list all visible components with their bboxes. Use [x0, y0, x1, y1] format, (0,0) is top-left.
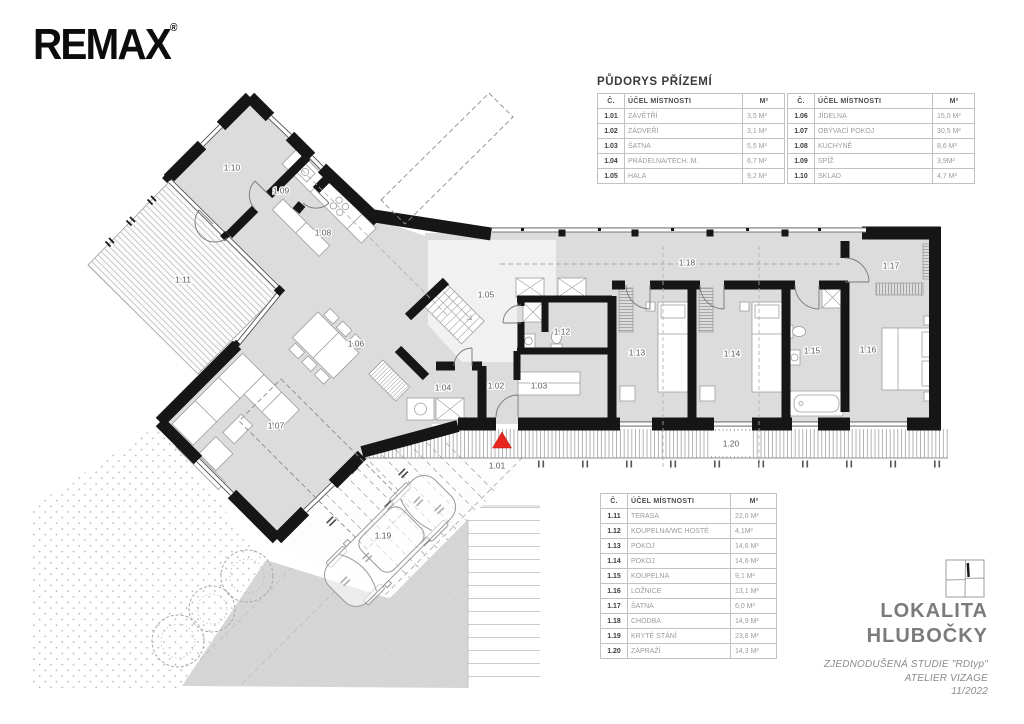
table-cell: 1.11: [601, 509, 628, 524]
column-header: M²: [933, 94, 975, 109]
table-cell: KRYTÉ STÁNÍ: [628, 629, 731, 644]
wardrobe-comb: [619, 288, 633, 332]
legend-table-1: Č.ÚČEL MÍSTNOSTIM²1.01ZÁVĚTŘÍ3,5 M²1.02Z…: [597, 93, 785, 184]
table-cell: 1.06: [788, 109, 815, 124]
room-label-1.04: 1.04: [435, 382, 452, 392]
table-cell: 1.17: [601, 599, 628, 614]
studio-name: ATELIER VIZAGE: [824, 672, 988, 686]
table-cell: 1.08: [788, 139, 815, 154]
room-label-1.12: 1.12: [554, 326, 571, 336]
table-cell: 5,5 M²: [743, 139, 785, 154]
table-cell: JÍDELNA: [815, 109, 933, 124]
table-row: 1.08KUCHYNĚ8,6 M²: [788, 139, 975, 154]
room-label-1.06: 1.06: [348, 338, 365, 348]
column-header: ÚČEL MÍSTNOSTI: [628, 494, 731, 509]
table-cell: 1.03: [598, 139, 625, 154]
table-row: 1.12KOUPELNA/WC HOSTÉ4,1M²: [601, 524, 777, 539]
table-row: 1.09SPÍŽ3,9M²: [788, 154, 975, 169]
table-row: 1.03ŠATNA5,5 M²: [598, 139, 785, 154]
entrance-canopy-outline: [381, 93, 513, 224]
table-row: 1.05HALA9,2 M²: [598, 169, 785, 184]
table-row: 1.01ZÁVĚTŘÍ3,5 M²: [598, 109, 785, 124]
table-cell: KUCHYNĚ: [815, 139, 933, 154]
table-row: 1.18CHODBA14,9 M²: [601, 614, 777, 629]
table-cell: 14,6 M²: [731, 554, 777, 569]
table-header-row: Č.ÚČEL MÍSTNOSTIM²: [788, 94, 975, 109]
table-cell: POKOJ: [628, 554, 731, 569]
locality-label: LOKALITA: [824, 599, 988, 624]
table-cell: 1.04: [598, 154, 625, 169]
locality-name: HLUBOČKY: [824, 624, 988, 649]
table-cell: TERASA: [628, 509, 731, 524]
room-label-1.03: 1.03: [531, 380, 548, 390]
room-label-1.18: 1.18: [679, 257, 696, 267]
room-label-1.13: 1.13: [629, 347, 646, 357]
table-cell: KOUPELNA/WC HOSTÉ: [628, 524, 731, 539]
wardrobe-comb: [699, 288, 713, 332]
table-cell: 1.10: [788, 169, 815, 184]
table-cell: 3,1 M²: [743, 124, 785, 139]
table-cell: 14,3 M²: [731, 644, 777, 659]
column-header: ÚČEL MÍSTNOSTI: [625, 94, 743, 109]
table-cell: 9,1 M²: [731, 569, 777, 584]
remax-logo: REMAX®: [33, 20, 177, 70]
table-cell: 14,9 M²: [731, 614, 777, 629]
atelier-logo-icon: [943, 557, 987, 601]
table-cell: 1.20: [601, 644, 628, 659]
table-cell: LOŽNICE: [628, 584, 731, 599]
table-cell: CHODBA: [628, 614, 731, 629]
table-cell: 1.19: [601, 629, 628, 644]
column-header: M²: [731, 494, 777, 509]
table-cell: 6,7 M²: [743, 154, 785, 169]
table-row: 1.06JÍDELNA15,0 M²: [788, 109, 975, 124]
column-header: M²: [743, 94, 785, 109]
room-label-1.05: 1.05: [478, 289, 495, 299]
room-label-1.10: 1.10: [224, 162, 241, 172]
wardrobe: [518, 372, 580, 395]
room-label-1.08: 1.08: [315, 227, 332, 237]
table-row: 1.02ZÁDVEŘÍ3,1 M²: [598, 124, 785, 139]
room-label-1.11: 1.11: [175, 274, 191, 284]
table-cell: ZÁVĚTŘÍ: [625, 109, 743, 124]
legend-title: PŮDORYS PŘÍZEMÍ: [597, 76, 712, 88]
table-cell: 30,5 M²: [933, 124, 975, 139]
room-label-1.02: 1.02: [488, 380, 505, 390]
table-cell: 1.01: [598, 109, 625, 124]
column-header: ÚČEL MÍSTNOSTI: [815, 94, 933, 109]
table-cell: PRÁDELNA/TECH. M.: [625, 154, 743, 169]
table-cell: SPÍŽ: [815, 154, 933, 169]
table-row: 1.20ZÁPRAŽÍ14,3 M²: [601, 644, 777, 659]
room-label-1.14: 1.14: [724, 348, 741, 358]
column-header: Č.: [598, 94, 625, 109]
column-header: Č.: [601, 494, 628, 509]
table-header-row: Č.ÚČEL MÍSTNOSTIM²: [601, 494, 777, 509]
table-row: 1.11TERASA22,0 M²: [601, 509, 777, 524]
table-cell: ŠATNA: [628, 599, 731, 614]
room-label-1.09: 1.09: [273, 185, 290, 195]
table-cell: 8,6 M²: [933, 139, 975, 154]
table-cell: 4,7 M²: [933, 169, 975, 184]
table-cell: 9,2 M²: [743, 169, 785, 184]
title-block: LOKALITA HLUBOČKY ZJEDNODUŠENÁ STUDIE "R…: [824, 599, 988, 699]
bed: [882, 316, 936, 401]
table-cell: 3,5 M²: [743, 109, 785, 124]
table-row: 1.04PRÁDELNA/TECH. M.6,7 M²: [598, 154, 785, 169]
room-label-1.07: 1.07: [268, 420, 285, 430]
remax-logo-text: REMAX: [33, 20, 170, 69]
table-cell: 4,1M²: [731, 524, 777, 539]
table-header-row: Č.ÚČEL MÍSTNOSTIM²: [598, 94, 785, 109]
registered-mark: ®: [170, 22, 177, 34]
table-cell: 1.16: [601, 584, 628, 599]
table-cell: 1.18: [601, 614, 628, 629]
table-cell: 13,1 M²: [731, 584, 777, 599]
table-cell: 1.02: [598, 124, 625, 139]
table-cell: 14,6 M²: [731, 539, 777, 554]
sheet-date: 11/2022: [824, 685, 988, 699]
room-label-1.17: 1.17: [883, 260, 900, 270]
table-row: 1.13POKOJ14,6 M²: [601, 539, 777, 554]
table-cell: 1.09: [788, 154, 815, 169]
legend-table-3: Č.ÚČEL MÍSTNOSTIM²1.11TERASA22,0 M²1.12K…: [600, 493, 777, 659]
room-label-1.16: 1.16: [860, 344, 877, 354]
table-cell: ZÁDVEŘÍ: [625, 124, 743, 139]
table-row: 1.15KOUPELNA9,1 M²: [601, 569, 777, 584]
room-label-1.19: 1.19: [375, 530, 392, 540]
table-cell: ZÁPRAŽÍ: [628, 644, 731, 659]
table-cell: 23,8 M²: [731, 629, 777, 644]
table-cell: OBÝVACÍ POKOJ: [815, 124, 933, 139]
table-cell: 1.12: [601, 524, 628, 539]
table-cell: 1.14: [601, 554, 628, 569]
table-cell: 1.07: [788, 124, 815, 139]
room-label-1.15: 1.15: [804, 345, 821, 355]
table-row: 1.07OBÝVACÍ POKOJ30,5 M²: [788, 124, 975, 139]
table-cell: 3,9M²: [933, 154, 975, 169]
table-cell: 1.15: [601, 569, 628, 584]
table-row: 1.16LOŽNICE13,1 M²: [601, 584, 777, 599]
table-cell: KOUPELNA: [628, 569, 731, 584]
room-label-1.20: 1.20: [723, 438, 740, 448]
column-header: Č.: [788, 94, 815, 109]
table-row: 1.10SKLAD4,7 M²: [788, 169, 975, 184]
table-cell: 1.13: [601, 539, 628, 554]
table-row: 1.14POKOJ14,6 M²: [601, 554, 777, 569]
table-row: 1.19KRYTÉ STÁNÍ23,8 M²: [601, 629, 777, 644]
study-name: ZJEDNODUŠENÁ STUDIE "RDtyp": [824, 658, 988, 672]
table-row: 1.17ŠATNA6,0 M²: [601, 599, 777, 614]
table-cell: POKOJ: [628, 539, 731, 554]
legend-table-2: Č.ÚČEL MÍSTNOSTIM²1.06JÍDELNA15,0 M²1.07…: [787, 93, 975, 184]
room-label-1.01: 1.01: [489, 460, 506, 470]
table-cell: 15,0 M²: [933, 109, 975, 124]
table-cell: HALA: [625, 169, 743, 184]
table-cell: 1.05: [598, 169, 625, 184]
table-cell: 22,0 M²: [731, 509, 777, 524]
table-cell: 6,0 M²: [731, 599, 777, 614]
table-cell: SKLAD: [815, 169, 933, 184]
table-cell: ŠATNA: [625, 139, 743, 154]
wardrobe-comb: [876, 283, 923, 295]
